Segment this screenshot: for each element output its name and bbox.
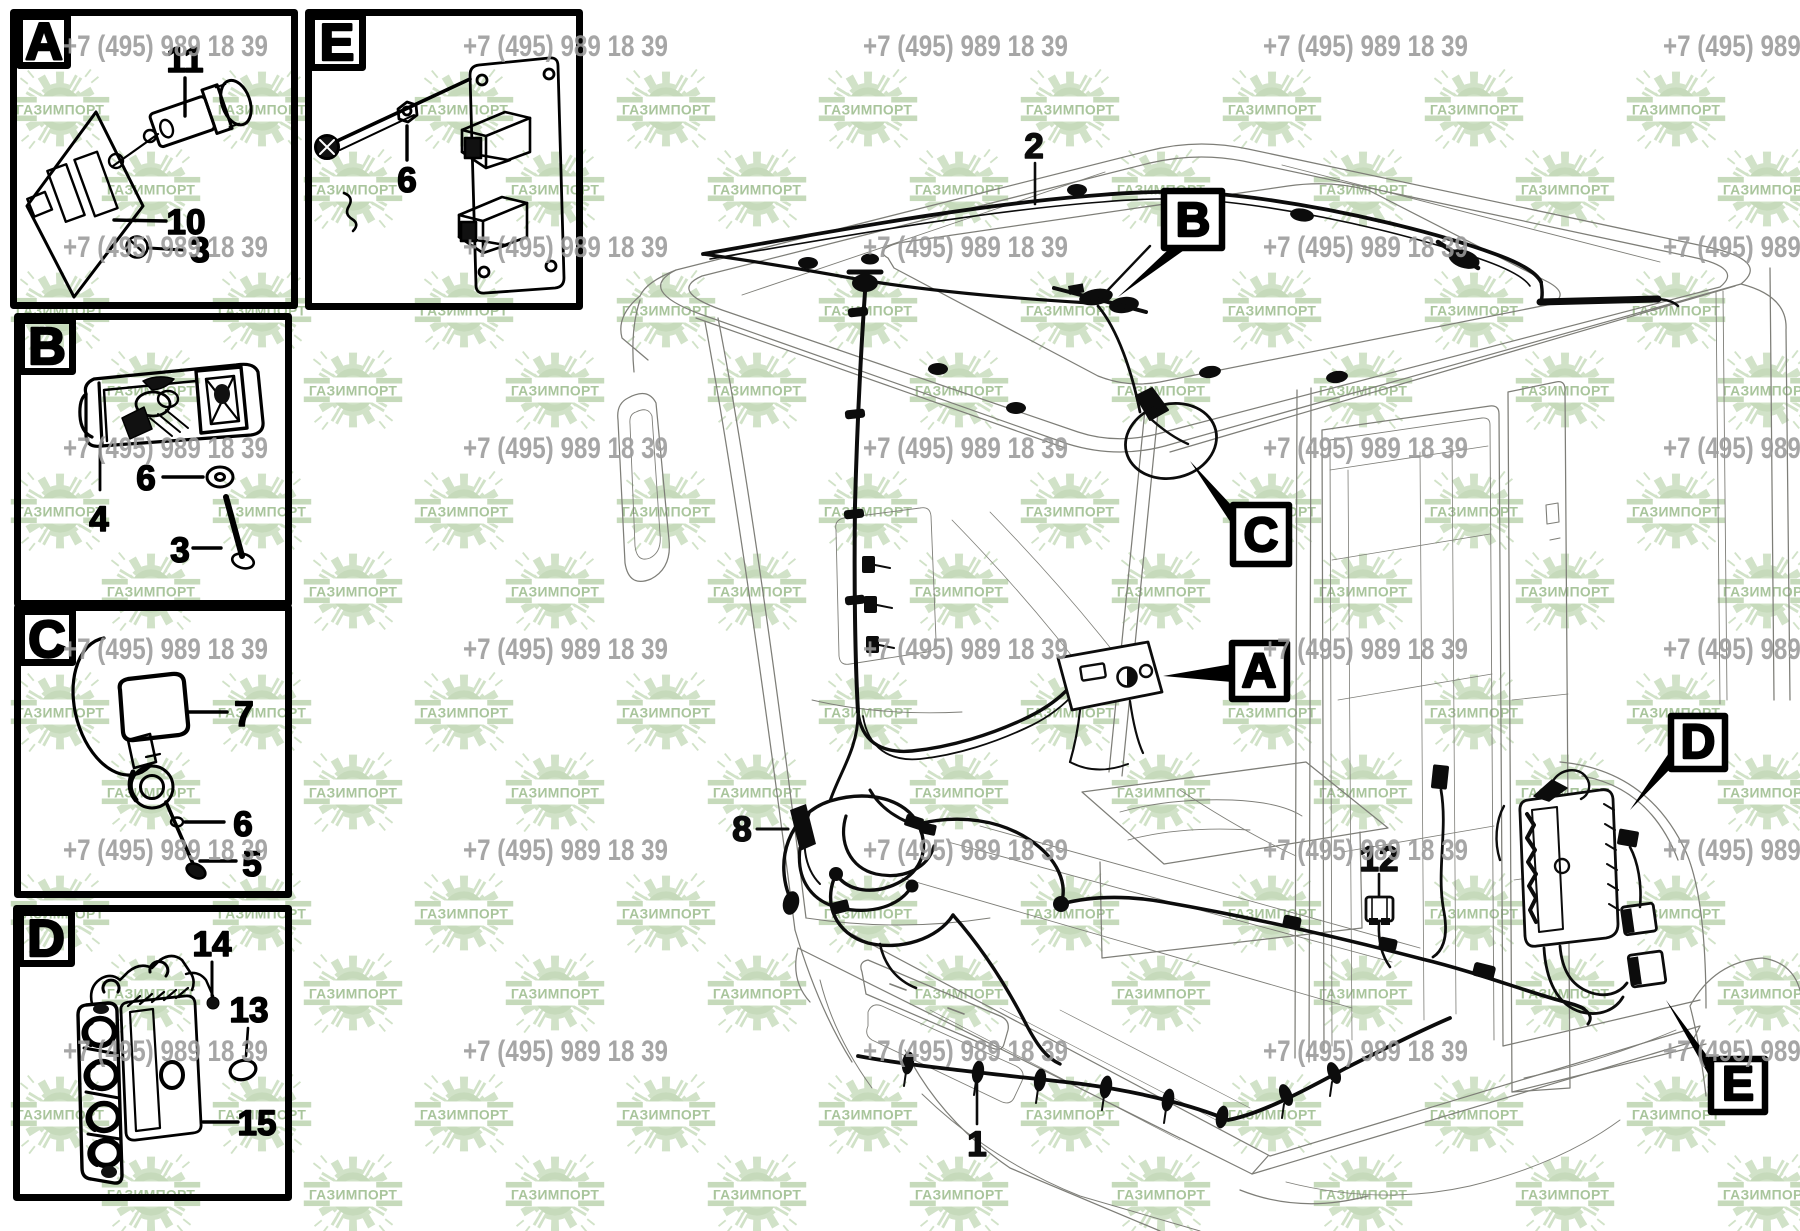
svg-text:+7 (495) 989 18 39: +7 (495) 989 18 39 bbox=[1663, 633, 1800, 666]
svg-text:+7 (495) 989 18 39: +7 (495) 989 18 39 bbox=[863, 231, 1068, 264]
svg-text:+7 (495) 989 18 39: +7 (495) 989 18 39 bbox=[863, 633, 1068, 666]
svg-text:+7 (495) 989 18 39: +7 (495) 989 18 39 bbox=[863, 834, 1068, 867]
svg-text:+7 (495) 989 18 39: +7 (495) 989 18 39 bbox=[463, 432, 668, 465]
svg-text:+7 (495) 989 18 39: +7 (495) 989 18 39 bbox=[1263, 1035, 1468, 1068]
svg-text:+7 (495) 989 18 39: +7 (495) 989 18 39 bbox=[1663, 30, 1800, 63]
svg-text:+7 (495) 989 18 39: +7 (495) 989 18 39 bbox=[1663, 231, 1800, 264]
svg-text:+7 (495) 989 18 39: +7 (495) 989 18 39 bbox=[1663, 432, 1800, 465]
svg-text:+7 (495) 989 18 39: +7 (495) 989 18 39 bbox=[463, 633, 668, 666]
svg-text:+7 (495) 989 18 39: +7 (495) 989 18 39 bbox=[863, 432, 1068, 465]
svg-text:+7 (495) 989 18 39: +7 (495) 989 18 39 bbox=[63, 834, 268, 867]
svg-text:+7 (495) 989 18 39: +7 (495) 989 18 39 bbox=[63, 633, 268, 666]
svg-text:+7 (495) 989 18 39: +7 (495) 989 18 39 bbox=[1263, 231, 1468, 264]
svg-text:+7 (495) 989 18 39: +7 (495) 989 18 39 bbox=[463, 1035, 668, 1068]
svg-text:+7 (495) 989 18 39: +7 (495) 989 18 39 bbox=[1663, 1035, 1800, 1068]
svg-text:+7 (495) 989 18 39: +7 (495) 989 18 39 bbox=[63, 231, 268, 264]
svg-text:+7 (495) 989 18 39: +7 (495) 989 18 39 bbox=[63, 432, 268, 465]
svg-text:+7 (495) 989 18 39: +7 (495) 989 18 39 bbox=[1263, 432, 1468, 465]
svg-text:+7 (495) 989 18 39: +7 (495) 989 18 39 bbox=[63, 1035, 268, 1068]
svg-text:+7 (495) 989 18 39: +7 (495) 989 18 39 bbox=[63, 30, 268, 63]
svg-text:+7 (495) 989 18 39: +7 (495) 989 18 39 bbox=[463, 30, 668, 63]
svg-text:+7 (495) 989 18 39: +7 (495) 989 18 39 bbox=[863, 30, 1068, 63]
svg-text:+7 (495) 989 18 39: +7 (495) 989 18 39 bbox=[1263, 30, 1468, 63]
svg-text:+7 (495) 989 18 39: +7 (495) 989 18 39 bbox=[463, 231, 668, 264]
svg-text:+7 (495) 989 18 39: +7 (495) 989 18 39 bbox=[1663, 834, 1800, 867]
svg-text:+7 (495) 989 18 39: +7 (495) 989 18 39 bbox=[463, 834, 668, 867]
svg-text:+7 (495) 989 18 39: +7 (495) 989 18 39 bbox=[1263, 633, 1468, 666]
svg-text:+7 (495) 989 18 39: +7 (495) 989 18 39 bbox=[1263, 834, 1468, 867]
svg-text:+7 (495) 989 18 39: +7 (495) 989 18 39 bbox=[863, 1035, 1068, 1068]
